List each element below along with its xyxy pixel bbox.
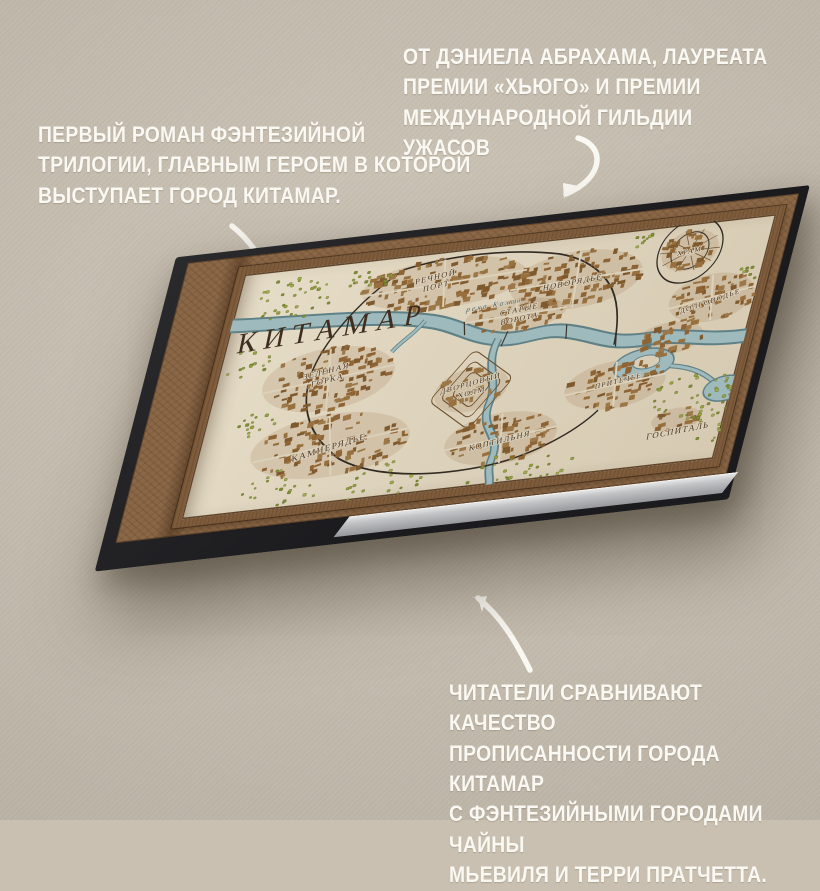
curved-arrow-top-icon bbox=[520, 132, 610, 216]
curved-arrow-bottom-icon bbox=[448, 586, 540, 676]
open-book: КИТАМАР река Кахон РЕЧНОЙ ПОРТ НОВОРЯДЬЕ… bbox=[116, 193, 799, 543]
quote-bottom-right: ЧИТАТЕЛИ СРАВНИВАЮТ КАЧЕСТВО ПРОПИСАННОС… bbox=[449, 678, 775, 891]
poster-root: { "background": { "color": "#c9c0b1", "t… bbox=[0, 0, 820, 820]
